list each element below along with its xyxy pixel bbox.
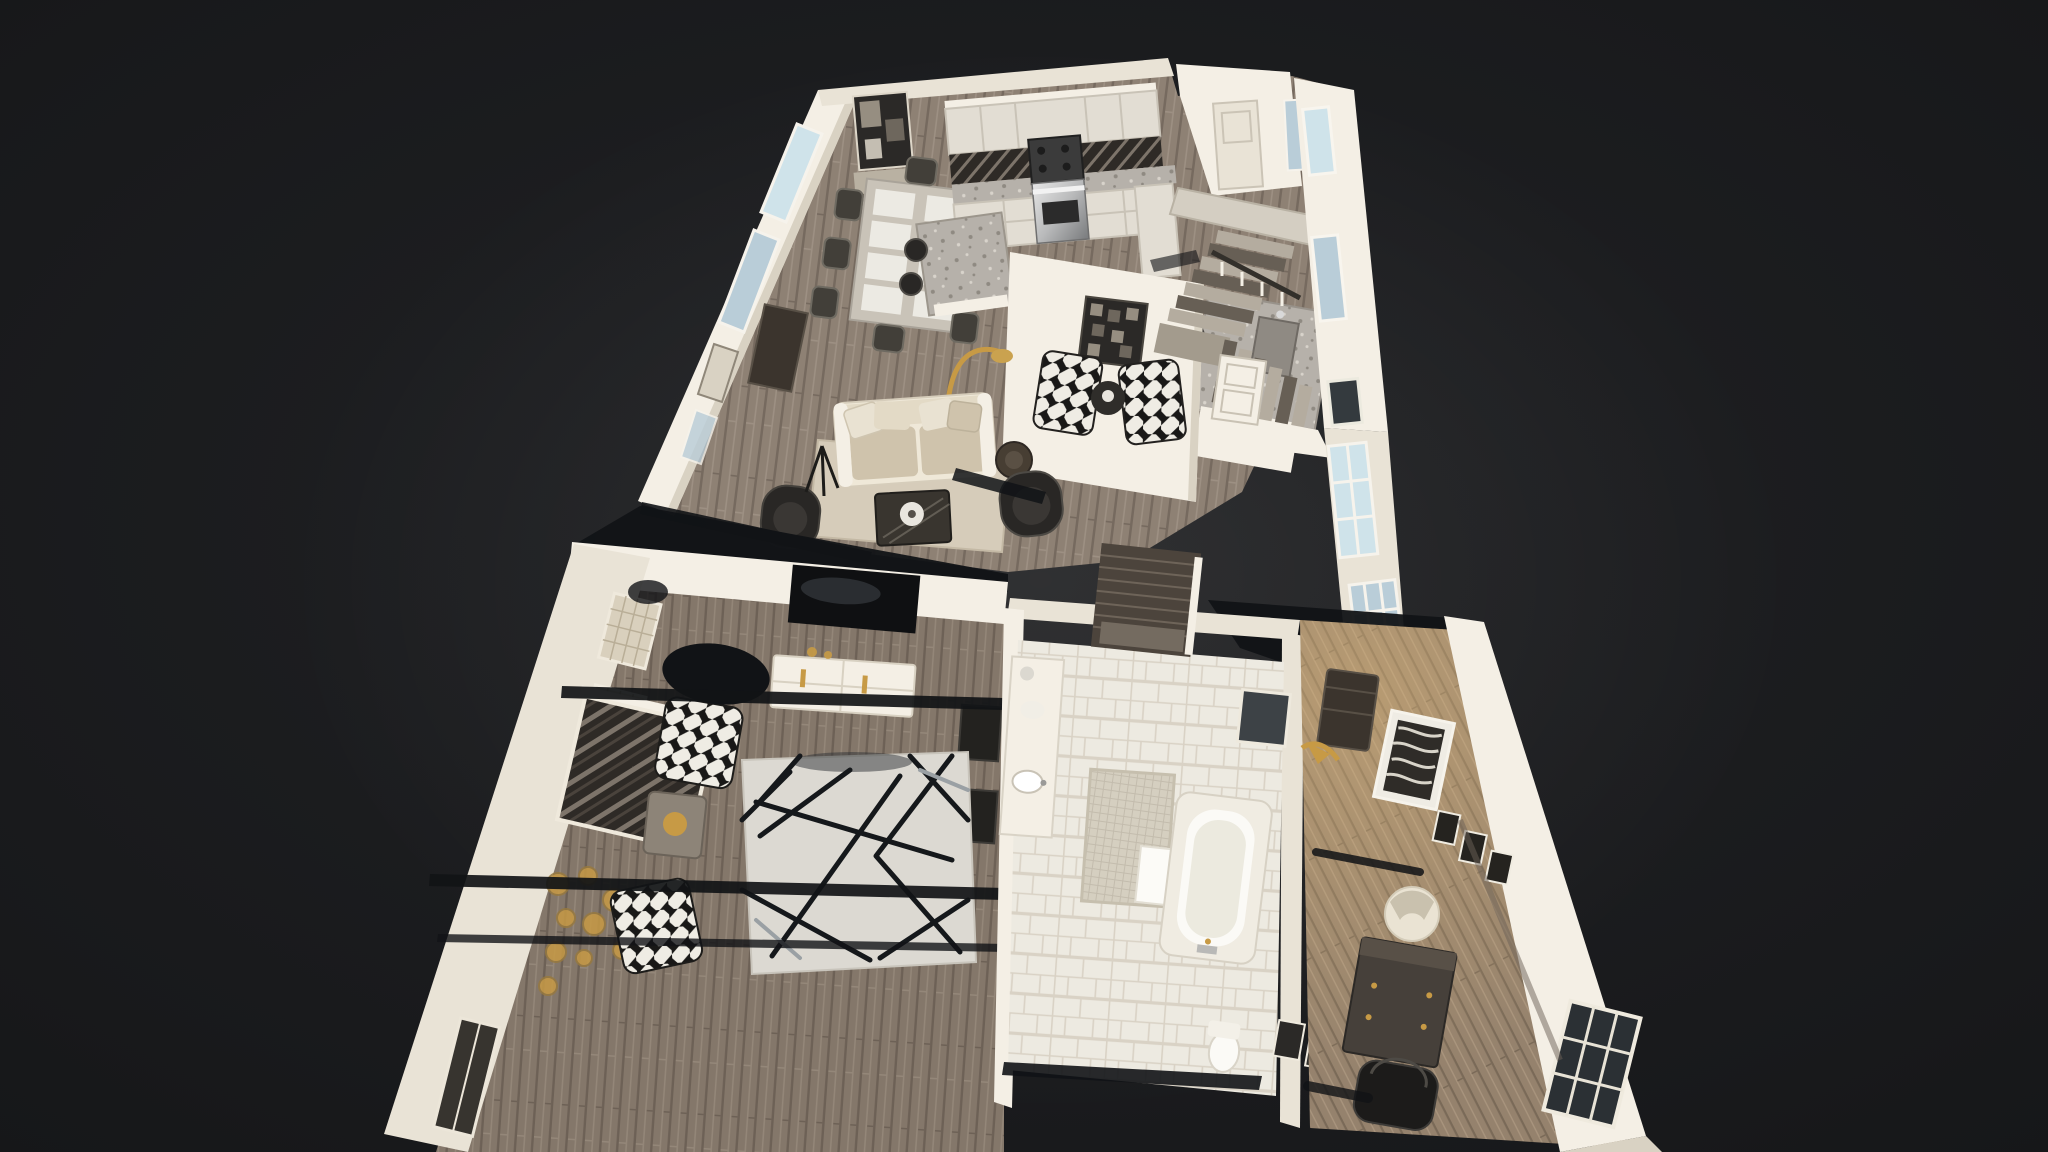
vanity-decor	[807, 647, 817, 657]
patterned-armchair	[1118, 359, 1187, 446]
dollhouse-scene[interactable]	[0, 0, 2048, 1152]
vanity-decor	[824, 651, 832, 659]
bedroom-side-table	[643, 791, 707, 859]
vanity	[1000, 656, 1064, 837]
television	[788, 565, 921, 634]
art-block	[885, 118, 905, 141]
art-block	[859, 100, 881, 128]
leather-barrel-chair	[997, 469, 1065, 539]
side-table-top	[1005, 451, 1023, 469]
window	[1303, 107, 1336, 175]
art-block	[865, 138, 883, 159]
viewer-canvas[interactable]	[0, 0, 2048, 1152]
bar-stool	[905, 239, 927, 261]
framed-art	[1273, 1020, 1305, 1060]
bar-stool	[900, 273, 922, 295]
orchid-pot	[1102, 390, 1114, 402]
ivory-desk-chair	[1385, 887, 1439, 941]
media-console	[1317, 669, 1379, 751]
throw-pillow	[947, 400, 983, 432]
shower	[1091, 543, 1203, 657]
dresser	[770, 655, 915, 717]
prep-island	[916, 212, 1014, 317]
patterned-armchair	[653, 696, 744, 790]
stair-door	[1212, 355, 1266, 425]
lower-floor[interactable]	[384, 542, 1662, 1152]
lamp-shade	[991, 349, 1013, 363]
range-oven	[1028, 135, 1089, 243]
desk	[1342, 937, 1457, 1068]
throw-pillow	[874, 401, 911, 430]
pantry-door	[1213, 101, 1263, 190]
coffee-table	[875, 490, 952, 546]
transom-window	[1328, 379, 1362, 426]
window-over-tub	[1237, 690, 1290, 747]
bathtub	[1158, 791, 1273, 965]
